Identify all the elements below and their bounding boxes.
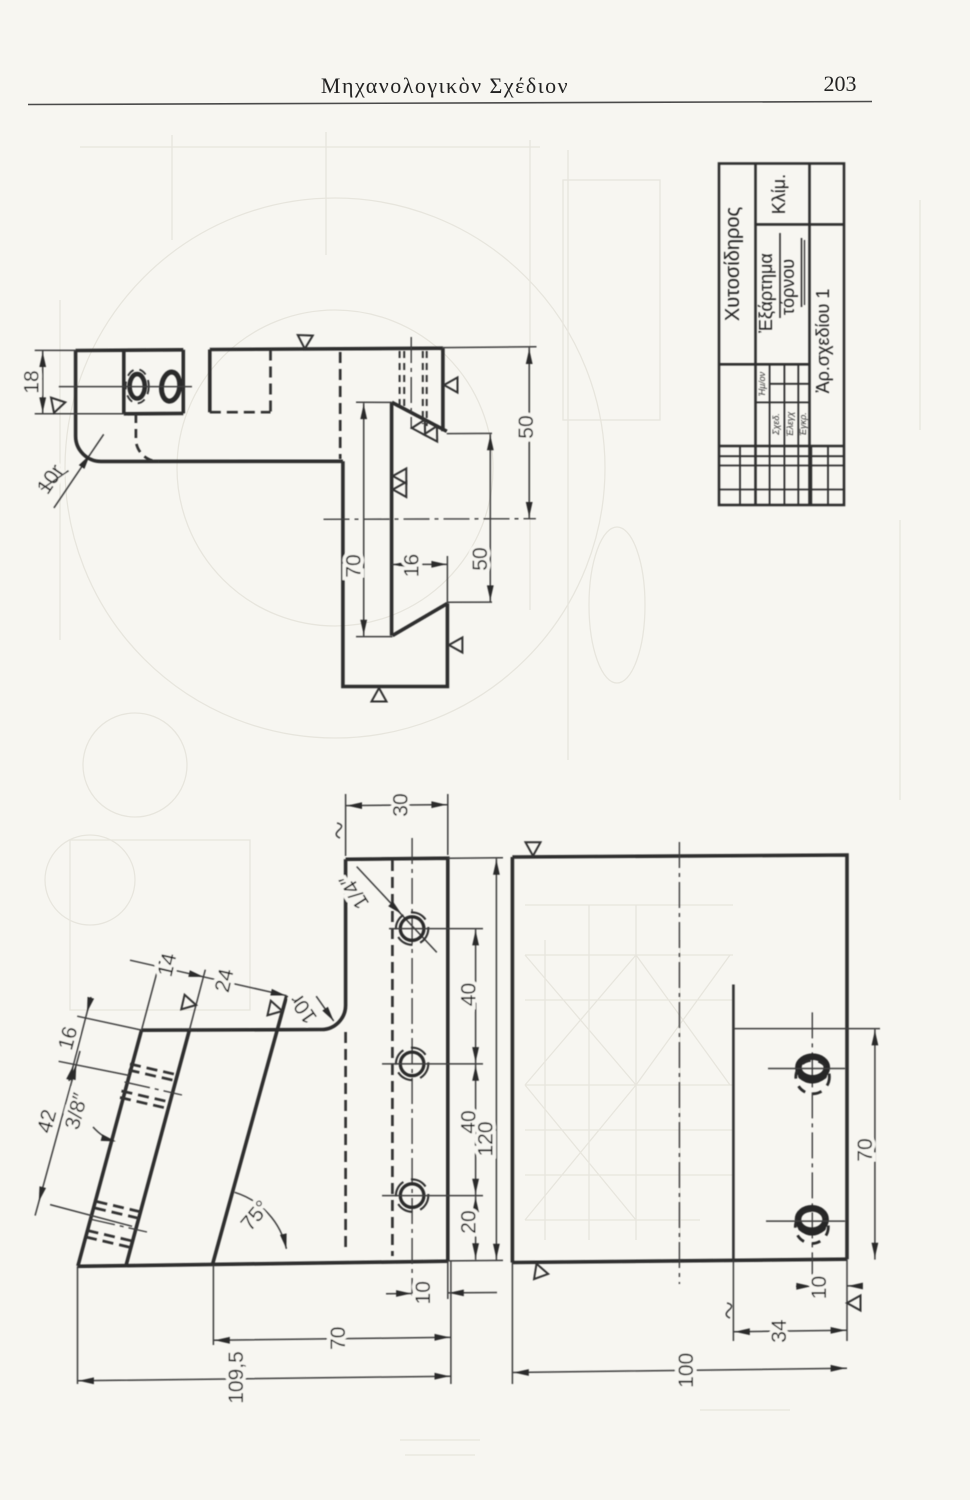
svg-text:Σχεδ.: Σχεδ.: [771, 413, 781, 436]
svg-text:Ἀρ.σχεδίου 1: Ἀρ.σχεδίου 1: [813, 289, 833, 394]
svg-text:16: 16: [401, 554, 424, 577]
svg-text:70: 70: [343, 554, 366, 577]
svg-text:Ἐξάρτημα: Ἐξάρτημα: [756, 253, 776, 333]
svg-text:10: 10: [412, 1281, 435, 1304]
svg-text:100: 100: [675, 1353, 698, 1388]
svg-text:Μηχανολογικὸν Σχέδιον: Μηχανολογικὸν Σχέδιον: [321, 73, 569, 98]
svg-text:20: 20: [458, 1210, 481, 1233]
svg-text:50: 50: [515, 415, 538, 438]
svg-text:30: 30: [390, 793, 413, 816]
svg-text:34: 34: [768, 1319, 791, 1343]
svg-text:Ἡμ/ον: Ἡμ/ον: [757, 371, 767, 396]
svg-text:40: 40: [458, 983, 481, 1006]
svg-text:τόρνου: τόρνου: [778, 259, 798, 315]
svg-text:10: 10: [808, 1276, 831, 1299]
svg-text:18: 18: [21, 370, 44, 393]
svg-text:70: 70: [854, 1138, 877, 1161]
svg-text:203: 203: [824, 71, 857, 96]
svg-text:Χυτοσίδηρος: Χυτοσίδηρος: [722, 207, 744, 322]
svg-text:109,5: 109,5: [225, 1351, 248, 1404]
svg-text:70: 70: [327, 1327, 350, 1350]
svg-text:Κλίμ.: Κλίμ.: [769, 174, 789, 214]
svg-text:50: 50: [469, 547, 492, 570]
svg-text:Ἐλεγχ: Ἐλεγχ: [785, 411, 795, 437]
svg-text:120: 120: [475, 1121, 498, 1156]
svg-text:Ἐγκρ.: Ἐγκρ.: [798, 412, 808, 436]
